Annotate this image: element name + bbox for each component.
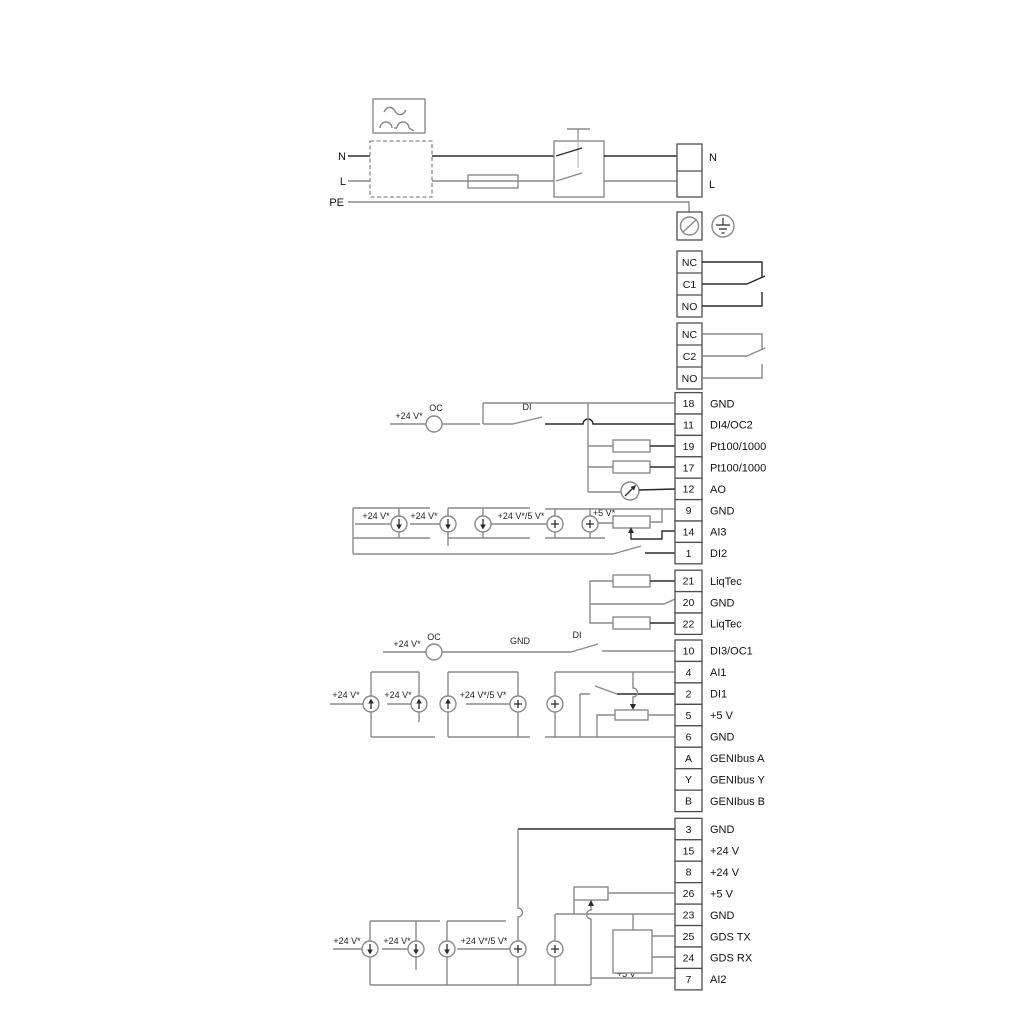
main-switch (554, 129, 604, 197)
terminal-number: 21 (683, 576, 695, 588)
terminal-number: 18 (683, 398, 695, 410)
relay2-nc: NC (682, 329, 698, 341)
terminal-label: DI4/OC2 (710, 420, 753, 432)
terminal-strip-3: 10DI3/OC14AI12DI15+5 V6GNDAGENIbus AYGEN… (675, 640, 765, 812)
terminal-label: AO (710, 484, 726, 496)
current-source-icon (475, 516, 491, 532)
terminal-number: 25 (683, 931, 695, 943)
terminal-number: 3 (686, 824, 692, 836)
pt100-resistor-19 (613, 440, 650, 452)
terminal-number: A (685, 753, 692, 765)
label-gnd: GND (510, 636, 531, 646)
voltage-source-icon (547, 941, 563, 957)
liqtec-resistor-22 (613, 617, 650, 629)
terminal-number: 11 (683, 420, 694, 432)
relay1-no: NO (682, 301, 698, 313)
liqtec-resistor-21 (613, 575, 650, 587)
screw-terminal (677, 212, 702, 240)
voltage-source-icon (547, 696, 563, 712)
current-source-icon (440, 516, 456, 532)
open-collector-icon (426, 644, 442, 660)
terminal-strip-2: 21LiqTec20GND22LiqTec (675, 570, 742, 634)
gds-sensor-box (613, 914, 675, 973)
ground-icon (712, 215, 734, 237)
terminal-number: 19 (683, 441, 695, 453)
voltage-source-icon (510, 941, 526, 957)
terminal-number: 26 (683, 888, 695, 900)
label-24v5v-2: +24 V*/5 V* (460, 690, 507, 700)
terminal-number: 2 (686, 688, 692, 700)
terminal-number: 6 (686, 731, 692, 743)
relay-1: NC C1 NO (677, 251, 765, 317)
source-row-1: +24 V* +24 V* +24 V*/5 V* +5 V* (353, 508, 675, 554)
terminal-number: 5 (686, 710, 692, 722)
voltage-source-icon (547, 516, 563, 532)
terminal-label: LiqTec (710, 576, 742, 588)
label-24v-3: +24 V* (410, 511, 438, 521)
wiper-arrow-icon (630, 704, 636, 710)
terminal-label: AI1 (710, 667, 727, 679)
terminal-label: DI2 (710, 548, 727, 560)
mains-filter-box (370, 141, 432, 197)
potentiometer-2 (615, 710, 648, 720)
liqtec-wiring (590, 575, 675, 629)
wiring-diagram-page: N L PE N L (0, 0, 1024, 1024)
terminal-number: 24 (683, 953, 695, 965)
voltage-source-icon (510, 696, 526, 712)
current-source-icon (391, 516, 407, 532)
terminal-label: +24 V (710, 867, 740, 879)
terminal-label: +24 V (710, 845, 740, 857)
terminal-label: Pt100/1000 (710, 441, 766, 453)
label-24v5v-1: +24 V*/5 V* (498, 511, 545, 521)
terminal-number: 12 (683, 484, 695, 496)
relay1-nc: NC (682, 257, 698, 269)
label-24v-1: +24 V* (395, 411, 423, 421)
power-section: N L PE N L (329, 99, 734, 240)
wiring-diagram: N L PE N L (0, 0, 1024, 1024)
label-24v5v-3: +24 V*/5 V* (461, 936, 508, 946)
terminal-number: 10 (683, 646, 695, 658)
di4-switch (483, 403, 542, 424)
relay2-c: C2 (683, 351, 697, 363)
relay2-contact (702, 348, 765, 356)
terminal-label: GND (710, 732, 735, 744)
current-source-icon (408, 941, 424, 957)
terminal-label: GDS RX (710, 953, 753, 965)
terminal-number: 15 (683, 845, 695, 857)
current-source-icon (411, 696, 427, 712)
label-pe: PE (329, 197, 344, 209)
ao-meter-icon (621, 482, 639, 500)
terminal-strip-4: 3GND15+24 V8+24 V26+5 V23GND25GDS TX24GD… (675, 818, 753, 990)
terminal-strip-1: 18GND11DI4/OC219Pt100/100017Pt100/100012… (675, 393, 766, 564)
relay1-c: C1 (683, 279, 697, 291)
label-24v-5: +24 V* (332, 690, 360, 700)
terminal-label: DI1 (710, 689, 727, 701)
pt100-resistor-17 (613, 461, 650, 473)
di2-switch (353, 546, 641, 554)
terminal-label: GENIbus B (710, 796, 765, 808)
terminal-number: 23 (683, 910, 695, 922)
terminal-label: GENIbus A (710, 753, 765, 765)
relay-2: NC C2 NO (677, 323, 765, 389)
source-row-3: +24 V* +24 V* +24 V*/5 V* +5 V* (333, 829, 675, 985)
terminal-label: +5 V (710, 710, 734, 722)
current-source-icon (363, 696, 379, 712)
current-source-icon (440, 696, 456, 712)
terminal-label: GND (710, 398, 735, 410)
terminal-label: AI3 (710, 527, 727, 539)
label-l-right: L (709, 179, 715, 191)
potentiometer-3 (574, 887, 608, 900)
terminal-number: 17 (683, 462, 695, 474)
label-di-2: DI (573, 630, 582, 640)
open-collector-icon (426, 416, 442, 432)
di3-row: +24 V* OC GND DI (383, 630, 675, 660)
terminal-label: +5 V (710, 888, 734, 900)
terminal-number: 14 (683, 527, 695, 539)
current-source-icon (439, 941, 455, 957)
terminal-number: 8 (686, 867, 692, 879)
label-n-left: N (338, 151, 346, 163)
terminal-label: GND (710, 597, 735, 609)
source-row-2: +24 V* +24 V* +24 V*/5 V* (330, 672, 675, 737)
di1-switch (580, 686, 617, 737)
voltage-source-icon (582, 516, 598, 532)
relay2-no: NO (682, 373, 698, 385)
label-24v-6: +24 V* (384, 690, 412, 700)
terminal-number: B (685, 796, 692, 808)
label-24v-8: +24 V* (383, 936, 411, 946)
terminal-label: GND (710, 505, 735, 517)
terminal-number: Y (685, 774, 692, 786)
label-24v-4: +24 V* (393, 639, 421, 649)
wiper-arrow-icon (588, 900, 594, 906)
label-n-right: N (709, 152, 717, 164)
terminal-number: 7 (686, 974, 692, 986)
potentiometer-1 (613, 516, 650, 528)
terminal-label: AI2 (710, 974, 727, 986)
terminal-label: GND (710, 824, 735, 836)
terminal-number: 9 (686, 505, 692, 517)
terminal-label: GDS TX (710, 931, 751, 943)
terminal-number: 22 (683, 619, 695, 631)
terminal-number: 1 (686, 548, 692, 560)
mains-terminal-block (677, 144, 702, 197)
current-source-icon (362, 941, 378, 957)
terminal-number: 20 (683, 597, 695, 609)
label-l-left: L (340, 176, 346, 188)
terminal-label: DI3/OC1 (710, 646, 753, 658)
label-oc-2: OC (427, 632, 441, 642)
terminal-label: Pt100/1000 (710, 463, 766, 475)
relay1-contact (702, 276, 765, 284)
label-24v-2: +24 V* (362, 511, 390, 521)
label-oc-1: OC (429, 403, 443, 413)
terminal-label: LiqTec (710, 619, 742, 631)
strip1-wiring: +24 V* OC DI (390, 402, 675, 500)
ac-symbol-box (373, 99, 425, 133)
terminal-number: 4 (686, 667, 692, 679)
wire-pe (348, 202, 689, 212)
terminal-label: GENIbus Y (710, 774, 765, 786)
label-24v-7: +24 V* (333, 936, 361, 946)
terminal-label: GND (710, 910, 735, 922)
